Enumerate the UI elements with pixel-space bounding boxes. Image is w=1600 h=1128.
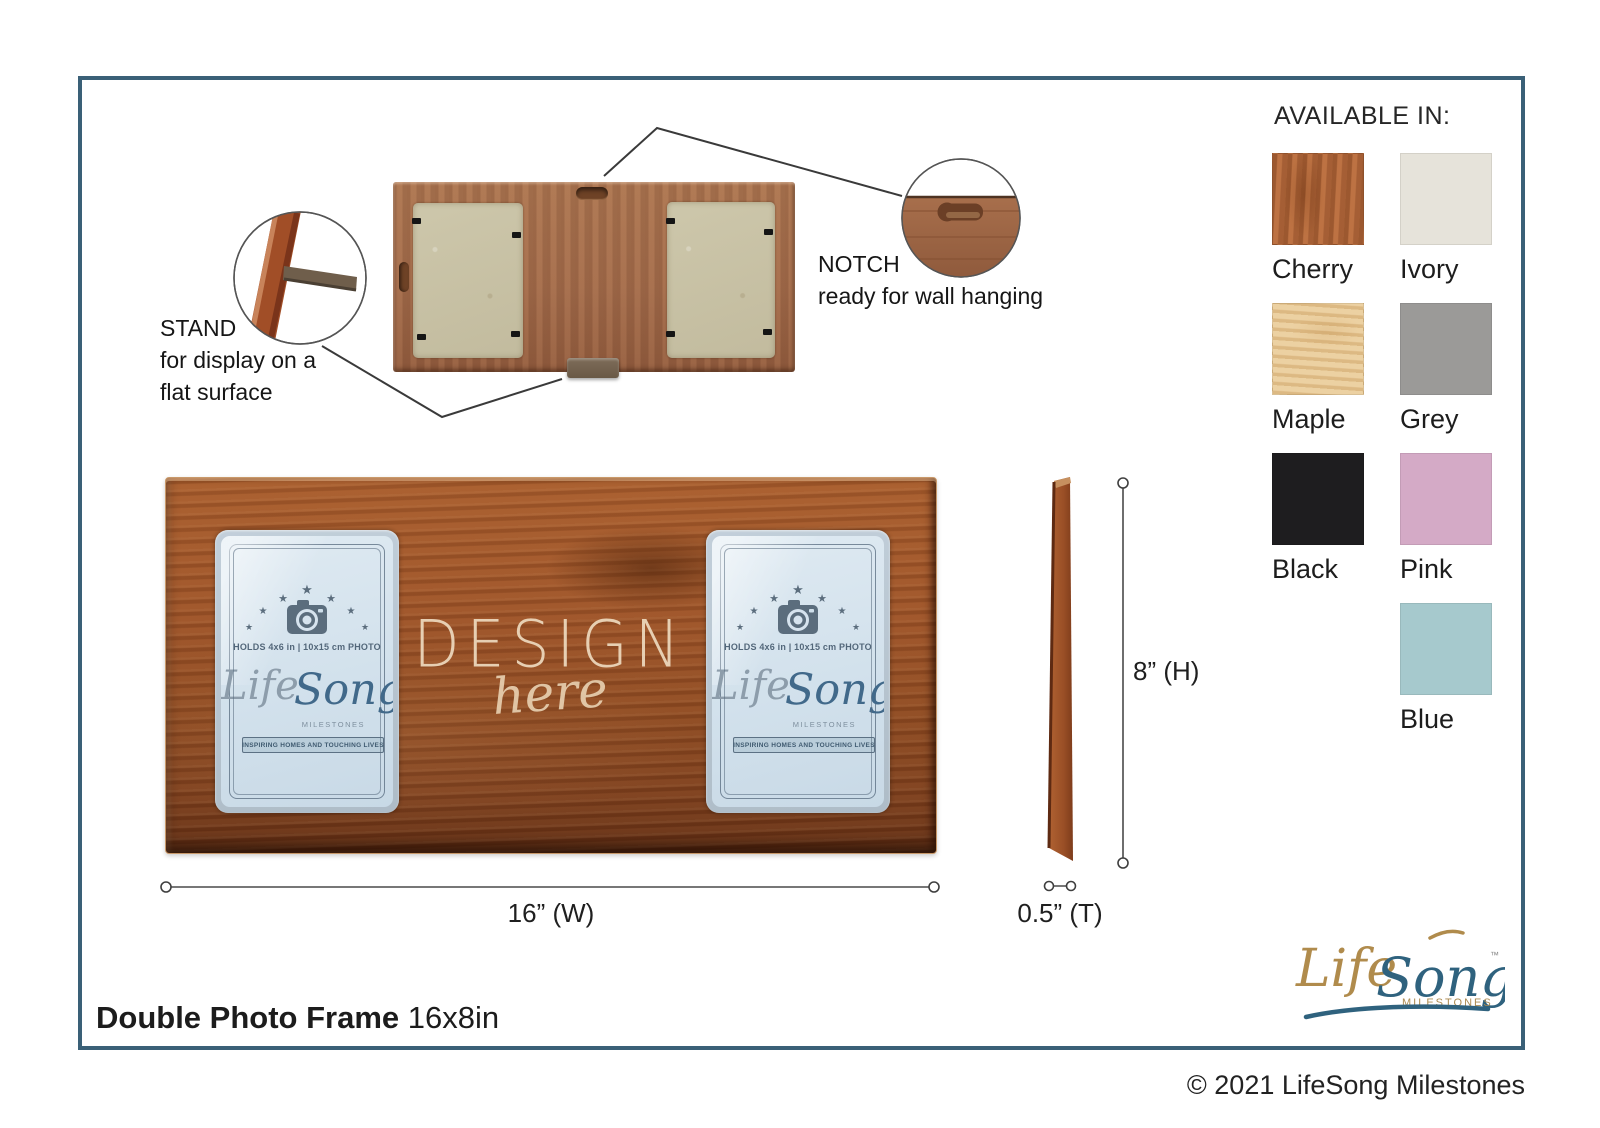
backing-clip	[417, 334, 426, 340]
side-hanging-slot	[399, 262, 409, 292]
svg-text:★: ★	[245, 622, 253, 632]
holds-size-text: HOLDS 4x6 in | 10x15 cm PHOTO	[712, 642, 884, 652]
card-sheen	[712, 536, 884, 685]
photo-insert-card-left: ★ ★ ★ ★ ★ ★ ★ HOLDS 4x6 in | 10x15 cm PH…	[215, 530, 399, 813]
brand-tagline-banner: INSPIRING HOMES AND TOUCHING LIVES	[733, 737, 875, 753]
available-in-panel: AVAILABLE IN: Cherry Ivory Maple Grey Bl…	[1272, 102, 1502, 735]
swatch-cell-cherry: Cherry	[1272, 153, 1364, 285]
card-brand-logo: LifeSong	[712, 660, 884, 710]
backing-clip	[666, 331, 675, 337]
product-title: Double Photo Frame 16x8in	[96, 1000, 499, 1036]
height-dimension-label: 8” (H)	[1133, 656, 1199, 687]
black-swatch	[1272, 453, 1364, 545]
copyright-text: © 2021 LifeSong Milestones	[1187, 1070, 1525, 1101]
svg-text:★: ★	[792, 582, 804, 597]
holds-size-text: HOLDS 4x6 in | 10x15 cm PHOTO	[221, 642, 393, 652]
width-dimension-label: 16” (W)	[401, 898, 701, 929]
color-swatch-grid: Cherry Ivory Maple Grey Black Pink	[1272, 153, 1502, 735]
backing-clip	[412, 218, 421, 224]
svg-text:★: ★	[278, 593, 288, 605]
svg-text:★: ★	[326, 593, 336, 605]
svg-text:★: ★	[259, 606, 268, 617]
swatch-cell-empty	[1272, 603, 1364, 735]
brand-song-text: Song	[294, 665, 393, 715]
backing-clip	[666, 218, 675, 224]
photo-backing-board-left	[413, 203, 523, 358]
width-dimension-line	[161, 882, 939, 892]
brand-life-text: Life	[221, 663, 299, 709]
product-size-text: 16x8in	[408, 1000, 499, 1035]
camera-stars-icon: ★ ★ ★ ★ ★ ★ ★	[239, 576, 375, 648]
brand-life-text: Life	[712, 663, 790, 709]
svg-text:★: ★	[750, 606, 759, 617]
swatch-cell-pink: Pink	[1400, 453, 1492, 585]
swatch-cell-ivory: Ivory	[1400, 153, 1492, 285]
blue-swatch	[1400, 603, 1492, 695]
lifesong-logo: Life Song ™ MILESTONES	[1290, 922, 1505, 1024]
hanging-notch-slot	[576, 187, 608, 200]
swatch-cell-grey: Grey	[1400, 303, 1492, 435]
svg-text:★: ★	[769, 593, 779, 605]
backing-clip	[512, 232, 521, 238]
side-profile-view	[1049, 477, 1073, 861]
logo-tm-text: ™	[1490, 950, 1499, 960]
card-sheen	[221, 536, 393, 685]
svg-text:★: ★	[817, 593, 827, 605]
camera-stars-icon: ★ ★ ★ ★ ★ ★ ★	[730, 576, 866, 648]
height-dimension-line	[1118, 478, 1128, 868]
logo-swoosh-underline	[1306, 1007, 1488, 1017]
svg-text:★: ★	[852, 622, 860, 632]
svg-text:★: ★	[838, 606, 847, 617]
black-label: Black	[1272, 554, 1364, 585]
brand-milestones-text: MILESTONES	[302, 720, 365, 729]
brand-song-text: Song	[785, 665, 884, 715]
brand-milestones-text: MILESTONES	[793, 720, 856, 729]
thickness-dimension-label: 0.5” (T)	[1000, 898, 1120, 929]
svg-text:★: ★	[736, 622, 744, 632]
grey-swatch	[1400, 303, 1492, 395]
grey-label: Grey	[1400, 404, 1492, 435]
brand-tagline-banner: INSPIRING HOMES AND TOUCHING LIVES	[242, 737, 384, 753]
insert-card-face: ★ ★ ★ ★ ★ ★ ★ HOLDS 4x6 in | 10x15 cm PH…	[221, 536, 393, 807]
insert-card-face: ★ ★ ★ ★ ★ ★ ★ HOLDS 4x6 in | 10x15 cm PH…	[712, 536, 884, 807]
swatch-cell-blue: Blue	[1400, 603, 1492, 735]
stand-callout-text: STAND for display on a flat surface	[160, 312, 316, 408]
ivory-swatch	[1400, 153, 1492, 245]
card-brand-logo: LifeSong	[221, 660, 393, 710]
thickness-dimension-line	[1045, 882, 1076, 891]
cherry-swatch	[1272, 153, 1364, 245]
photo-backing-board-right	[667, 202, 775, 358]
available-in-heading: AVAILABLE IN:	[1274, 102, 1502, 131]
maple-label: Maple	[1272, 404, 1364, 435]
stand-callout-line1: for display on a	[160, 344, 316, 376]
blue-label: Blue	[1400, 704, 1492, 735]
swatch-cell-maple: Maple	[1272, 303, 1364, 435]
maple-swatch	[1272, 303, 1364, 395]
backing-clip	[511, 331, 520, 337]
photo-insert-card-right: ★ ★ ★ ★ ★ ★ ★ HOLDS 4x6 in | 10x15 cm PH…	[706, 530, 890, 813]
notch-callout-text: NOTCH ready for wall hanging	[818, 248, 1043, 312]
stand-bracket	[567, 358, 619, 378]
stand-callout-title: STAND	[160, 312, 316, 344]
backing-clip	[763, 329, 772, 335]
notch-callout-line1: ready for wall hanging	[818, 280, 1043, 312]
cherry-label: Cherry	[1272, 254, 1364, 285]
stand-callout-line2: flat surface	[160, 376, 316, 408]
infographic-canvas: STAND for display on a flat surface NOTC…	[0, 0, 1600, 1128]
svg-text:★: ★	[361, 622, 369, 632]
pink-label: Pink	[1400, 554, 1492, 585]
notch-callout-title: NOTCH	[818, 248, 1043, 280]
svg-text:★: ★	[301, 582, 313, 597]
ivory-label: Ivory	[1400, 254, 1492, 285]
pink-swatch	[1400, 453, 1492, 545]
svg-text:★: ★	[347, 606, 356, 617]
backing-clip	[764, 229, 773, 235]
logo-swoosh-top	[1430, 931, 1463, 938]
product-name-text: Double Photo Frame	[96, 1000, 399, 1035]
swatch-cell-black: Black	[1272, 453, 1364, 585]
